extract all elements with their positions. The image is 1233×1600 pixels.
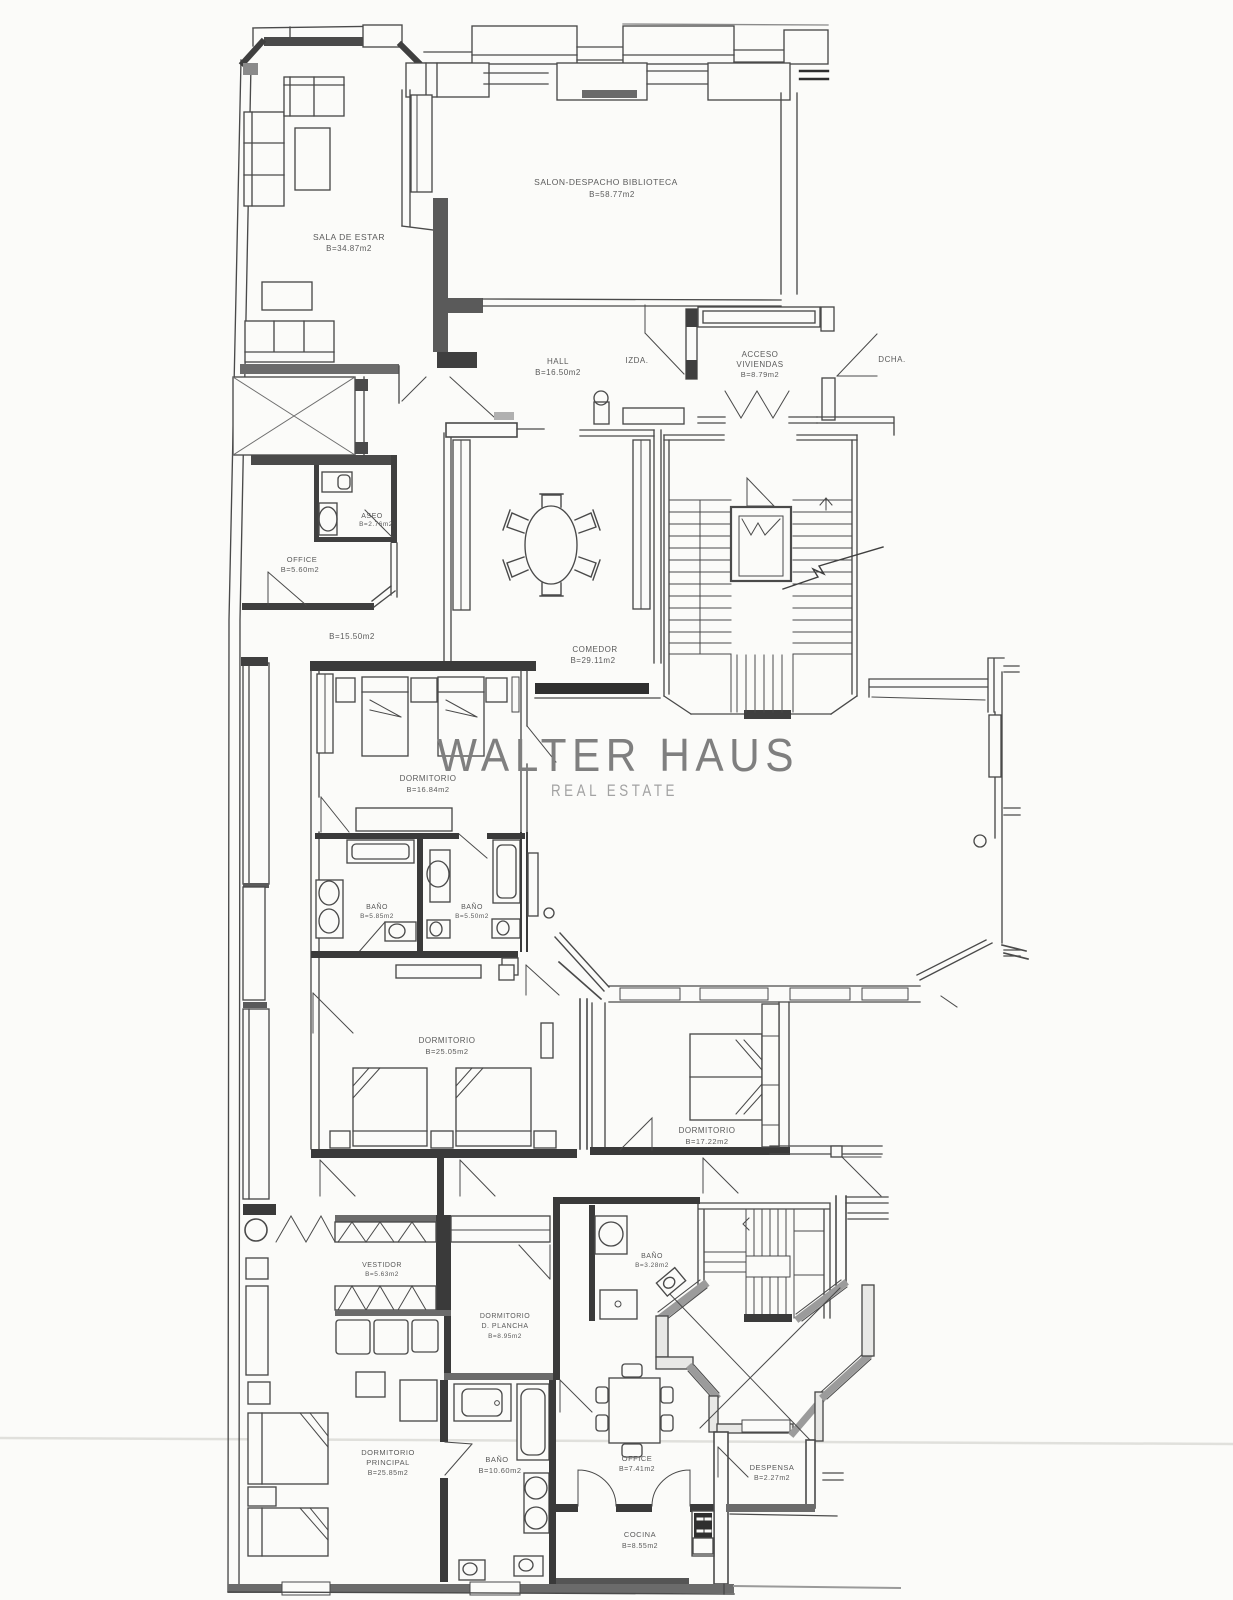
svg-text:B=5.60m2: B=5.60m2 (281, 565, 319, 574)
svg-text:DCHA.: DCHA. (878, 355, 905, 364)
svg-text:VESTIDOR: VESTIDOR (362, 1262, 402, 1269)
svg-text:COMEDOR: COMEDOR (572, 645, 617, 654)
svg-text:B=8.95m2: B=8.95m2 (488, 1333, 522, 1340)
svg-text:ACCESO: ACCESO (742, 350, 779, 359)
svg-text:REAL ESTATE: REAL ESTATE (551, 781, 678, 800)
svg-text:OFFICE: OFFICE (622, 1454, 653, 1463)
svg-text:BAÑO: BAÑO (461, 902, 483, 911)
svg-text:B=2.76m2: B=2.76m2 (359, 521, 393, 528)
svg-text:B=8.79m2: B=8.79m2 (741, 370, 779, 379)
svg-text:B=17.22m2: B=17.22m2 (685, 1137, 728, 1146)
svg-text:PRINCIPAL: PRINCIPAL (366, 1458, 410, 1467)
svg-text:ASEO: ASEO (361, 513, 383, 520)
svg-text:B=29.11m2: B=29.11m2 (570, 656, 615, 665)
svg-text:HALL: HALL (547, 357, 569, 366)
svg-text:B=16.50m2: B=16.50m2 (535, 368, 581, 377)
svg-text:COCINA: COCINA (624, 1530, 656, 1539)
svg-text:DORMITORIO: DORMITORIO (361, 1448, 415, 1457)
svg-text:B=3.28m2: B=3.28m2 (635, 1262, 669, 1269)
svg-text:BAÑO: BAÑO (485, 1455, 508, 1464)
svg-text:B=2.27m2: B=2.27m2 (754, 1475, 790, 1482)
svg-text:B=8.55m2: B=8.55m2 (622, 1543, 658, 1550)
svg-text:B=25.85m2: B=25.85m2 (368, 1470, 409, 1477)
svg-text:VIVIENDAS: VIVIENDAS (736, 360, 783, 369)
svg-text:B=10.60m2: B=10.60m2 (478, 1466, 521, 1475)
svg-text:DORMITORIO: DORMITORIO (480, 1313, 530, 1320)
svg-text:B=16.84m2: B=16.84m2 (406, 785, 449, 794)
svg-text:DORMITORIO: DORMITORIO (679, 1126, 736, 1135)
svg-text:B=15.50m2: B=15.50m2 (329, 632, 375, 641)
svg-text:SALON-DESPACHO BIBLIOTECA: SALON-DESPACHO BIBLIOTECA (534, 177, 678, 187)
svg-text:B=7.41m2: B=7.41m2 (619, 1466, 655, 1473)
svg-text:IZDA.: IZDA. (626, 356, 649, 365)
svg-text:DESPENSA: DESPENSA (750, 1463, 795, 1472)
svg-text:DORMITORIO: DORMITORIO (419, 1036, 476, 1045)
svg-text:BAÑO: BAÑO (641, 1251, 663, 1260)
svg-text:B=5.85m2: B=5.85m2 (360, 913, 394, 920)
svg-text:BAÑO: BAÑO (366, 902, 388, 911)
svg-text:WALTER HAUS: WALTER HAUS (437, 729, 799, 781)
svg-text:B=25.05m2: B=25.05m2 (425, 1047, 468, 1056)
svg-text:B=34.87m2: B=34.87m2 (326, 244, 372, 253)
svg-text:D. PLANCHA: D. PLANCHA (481, 1323, 528, 1330)
svg-text:B=5.63m2: B=5.63m2 (365, 1271, 399, 1278)
svg-text:B=58.77m2: B=58.77m2 (589, 190, 635, 199)
svg-text:B=5.50m2: B=5.50m2 (455, 913, 489, 920)
svg-text:SALA DE ESTAR: SALA DE ESTAR (313, 232, 385, 242)
svg-text:OFFICE: OFFICE (287, 555, 318, 564)
